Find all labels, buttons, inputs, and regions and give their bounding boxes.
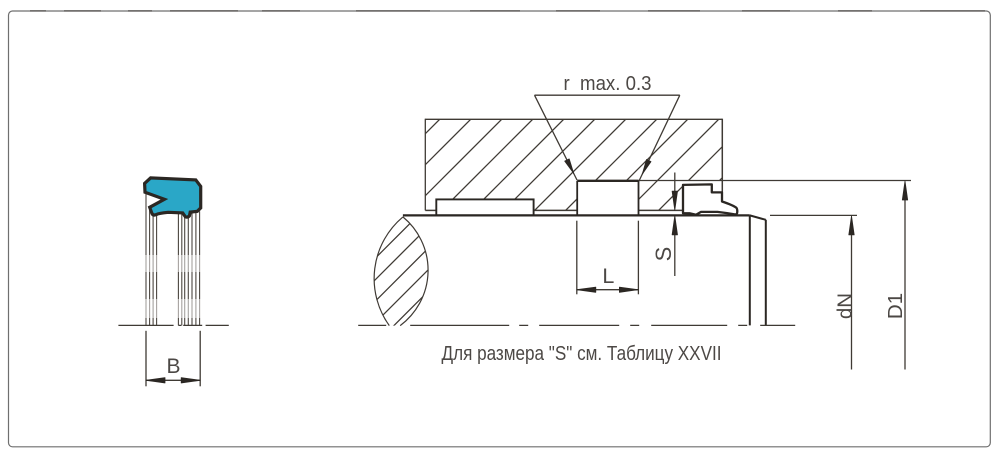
svg-text:r max. 0.3: r max. 0.3: [564, 72, 652, 95]
svg-text:dN: dN: [834, 293, 857, 319]
svg-text:Для размера "S" см. Таблицу XX: Для размера "S" см. Таблицу XXVII: [442, 342, 722, 365]
svg-text:D1: D1: [884, 293, 907, 319]
svg-text:S: S: [651, 247, 676, 262]
svg-text:B: B: [166, 355, 180, 378]
svg-text:L: L: [602, 264, 614, 288]
